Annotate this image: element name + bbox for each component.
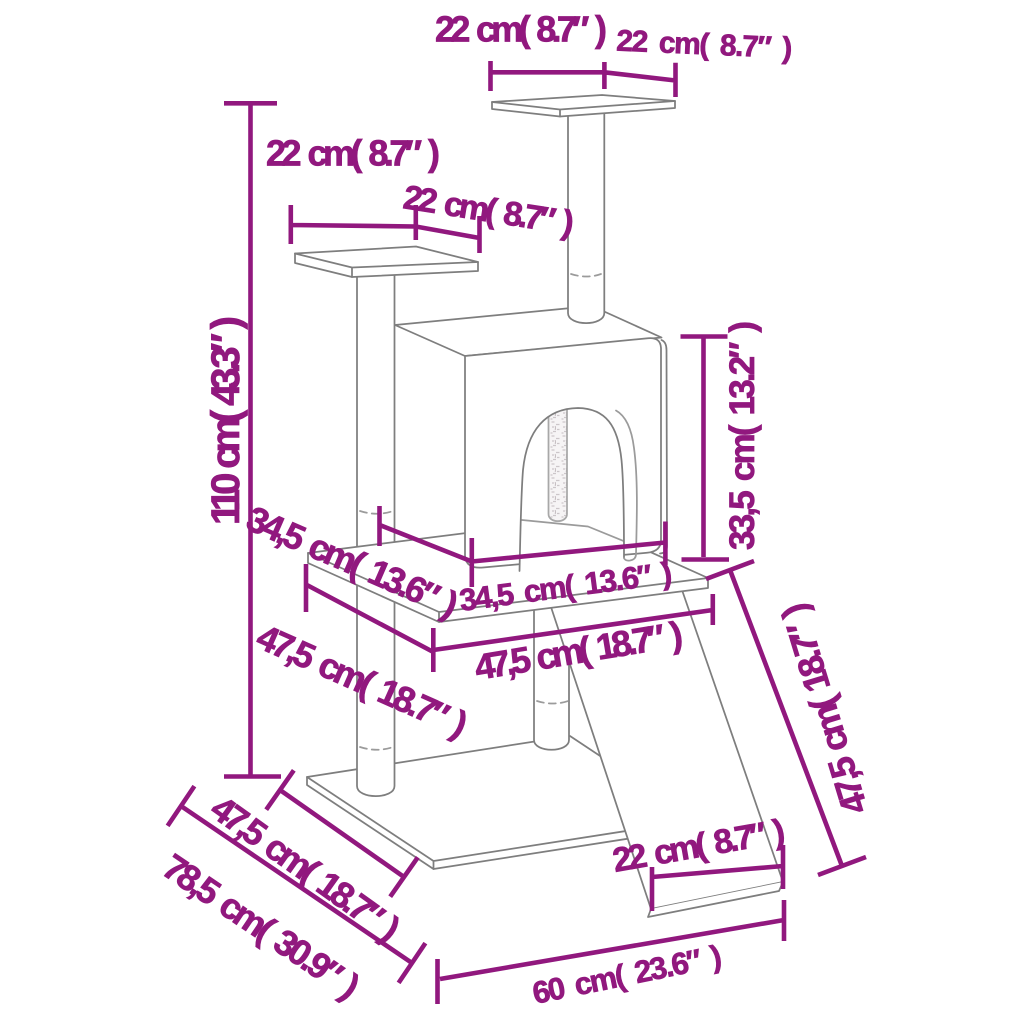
svg-text:33,5 cm( 13.2″ ): 33,5 cm( 13.2″ ) xyxy=(723,321,762,550)
svg-text:22 cm( 8.7″ ): 22 cm( 8.7″ ) xyxy=(616,25,793,66)
svg-text:22 cm( 8.7″ ): 22 cm( 8.7″ ) xyxy=(435,9,607,50)
svg-text:22 cm( 8.7″ ): 22 cm( 8.7″ ) xyxy=(401,178,577,242)
svg-text:110 cm( 43.3″ ): 110 cm( 43.3″ ) xyxy=(204,316,248,525)
svg-text:22 cm( 8.7″ ): 22 cm( 8.7″ ) xyxy=(266,133,440,174)
svg-text:47,5 cm( 18.7″ ): 47,5 cm( 18.7″ ) xyxy=(773,599,876,819)
